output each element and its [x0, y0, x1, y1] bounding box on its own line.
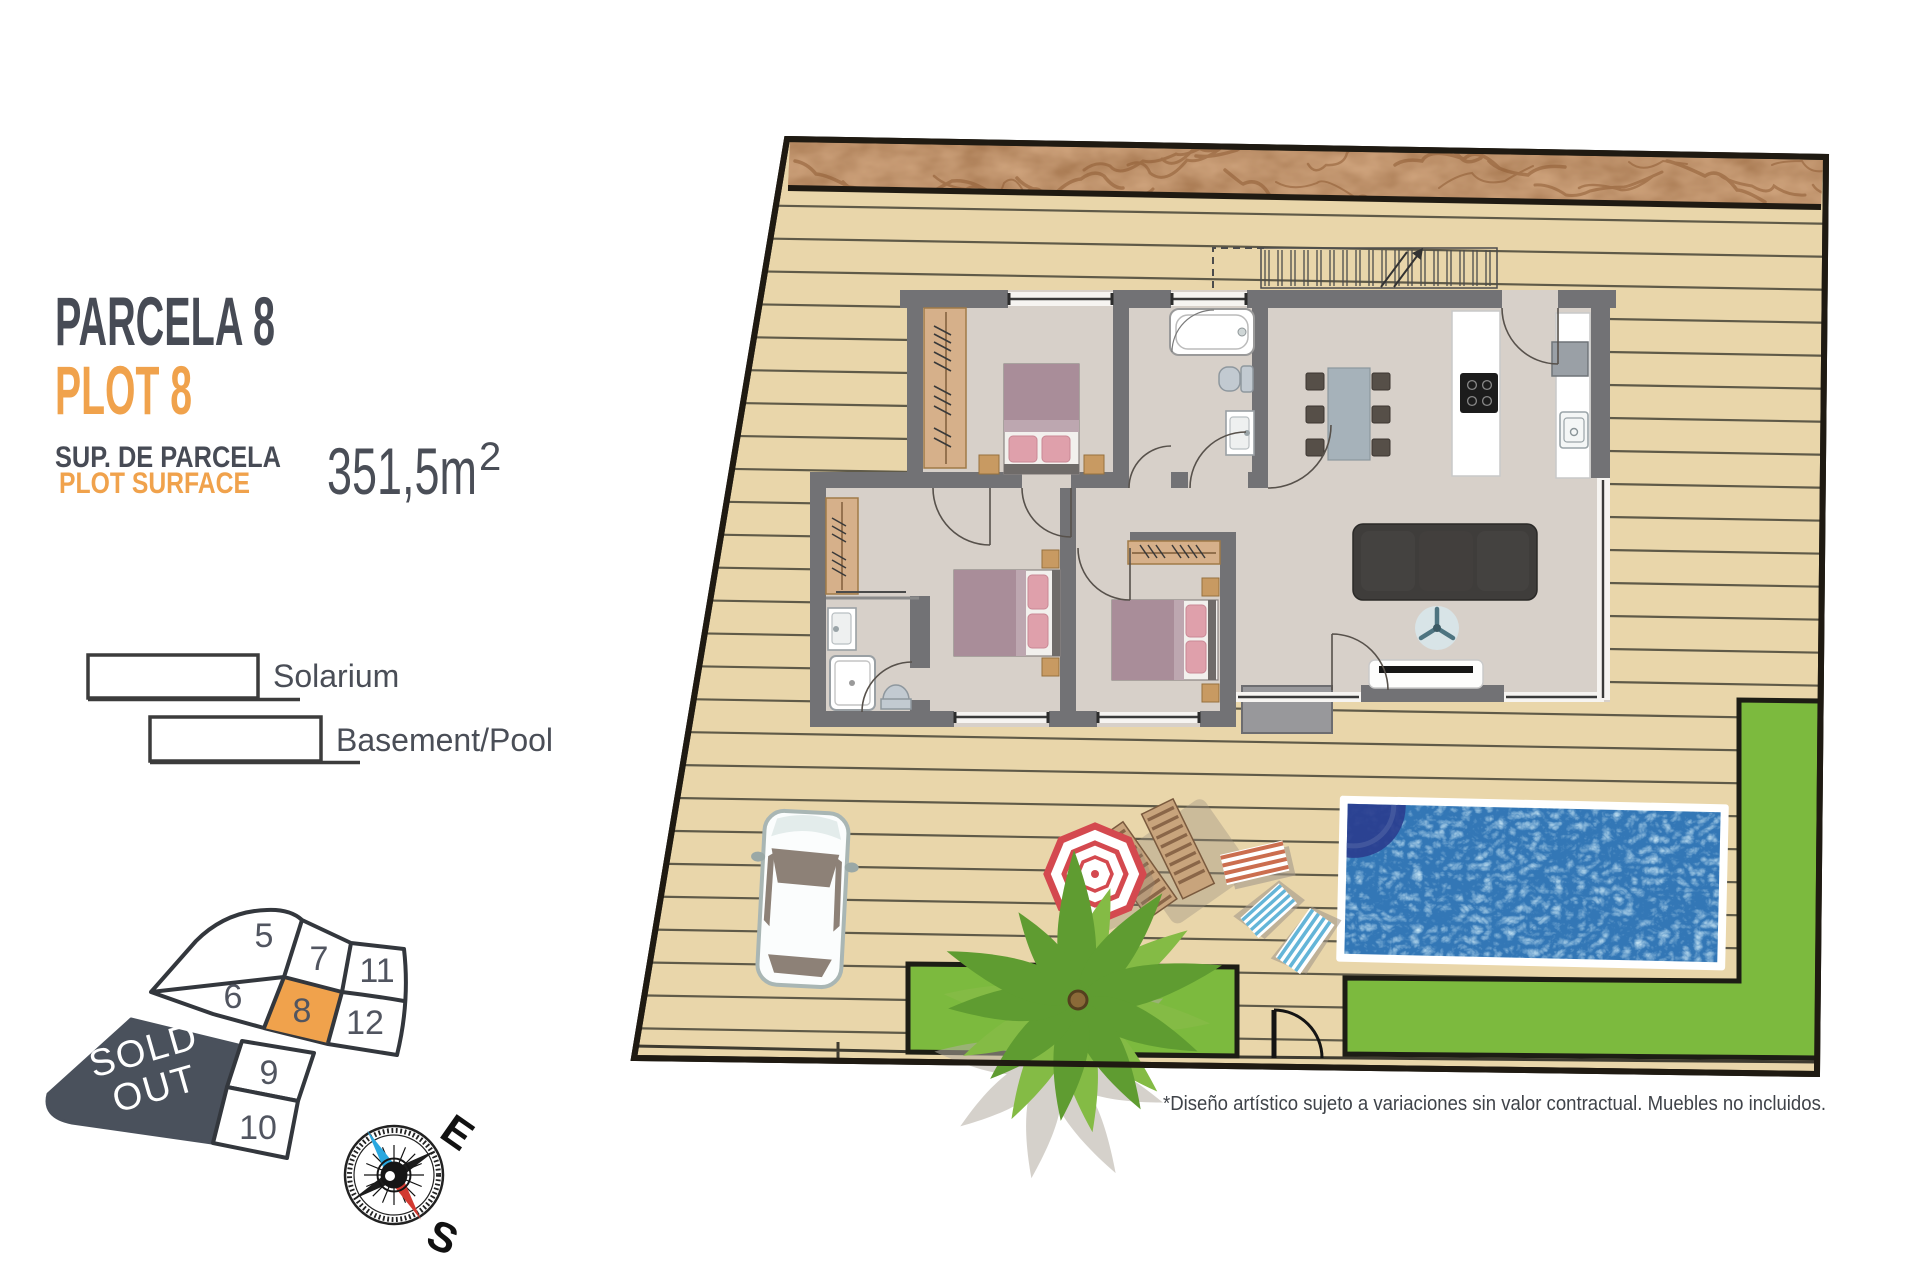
svg-text:Basement/Pool: Basement/Pool: [336, 722, 553, 758]
svg-text:2: 2: [479, 435, 501, 479]
svg-text:PLOT SURFACE: PLOT SURFACE: [59, 467, 250, 500]
svg-text:7: 7: [310, 940, 329, 978]
svg-text:5: 5: [255, 917, 274, 955]
svg-text:351,5m: 351,5m: [327, 434, 477, 508]
svg-text:*Diseño artístico sujeto a var: *Diseño artístico sujeto a variaciones s…: [1163, 1093, 1826, 1115]
svg-text:6: 6: [224, 978, 243, 1016]
svg-text:11: 11: [359, 952, 394, 990]
svg-text:PLOT 8: PLOT 8: [55, 352, 192, 429]
svg-text:10: 10: [239, 1109, 277, 1147]
svg-text:PARCELA 8: PARCELA 8: [55, 283, 275, 360]
svg-text:12: 12: [346, 1004, 384, 1042]
svg-text:8: 8: [293, 992, 312, 1030]
svg-text:Solarium: Solarium: [273, 658, 399, 694]
svg-text:9: 9: [260, 1054, 279, 1092]
